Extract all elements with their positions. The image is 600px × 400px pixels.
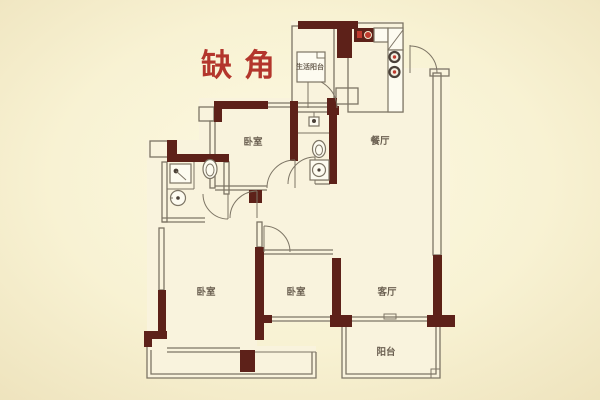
toilet-icon: [203, 160, 217, 179]
room-label-dining: 餐厅: [369, 135, 390, 147]
room-label-bedroom-left: 卧室: [196, 286, 216, 298]
missing-corner-annotation: 缺角: [201, 48, 287, 84]
room-label-balcony: 阳台: [376, 346, 396, 358]
toilet-icon: [313, 141, 326, 158]
sink-icon: [170, 191, 186, 206]
room-label-bedroom-top: 卧室: [243, 136, 263, 148]
room-label-living: 客厅: [376, 286, 397, 298]
kitchen-corner-counter: [388, 28, 403, 50]
room-label-bedroom-middle: 卧室: [286, 286, 306, 298]
stove-icon: [354, 28, 374, 42]
floor-plan-screenshot: 缺角 生活阳台 餐厅 卧室 卧室 卧室 客厅 阳台: [0, 0, 600, 400]
shower-icon: [170, 164, 191, 183]
kitchen-counter: [374, 28, 388, 42]
room-label-utility-balcony: 生活阳台: [296, 62, 324, 71]
sink-icon: [310, 160, 329, 180]
floor-plan-canvas: 缺角 生活阳台 餐厅 卧室 卧室 卧室 客厅 阳台: [0, 0, 600, 400]
